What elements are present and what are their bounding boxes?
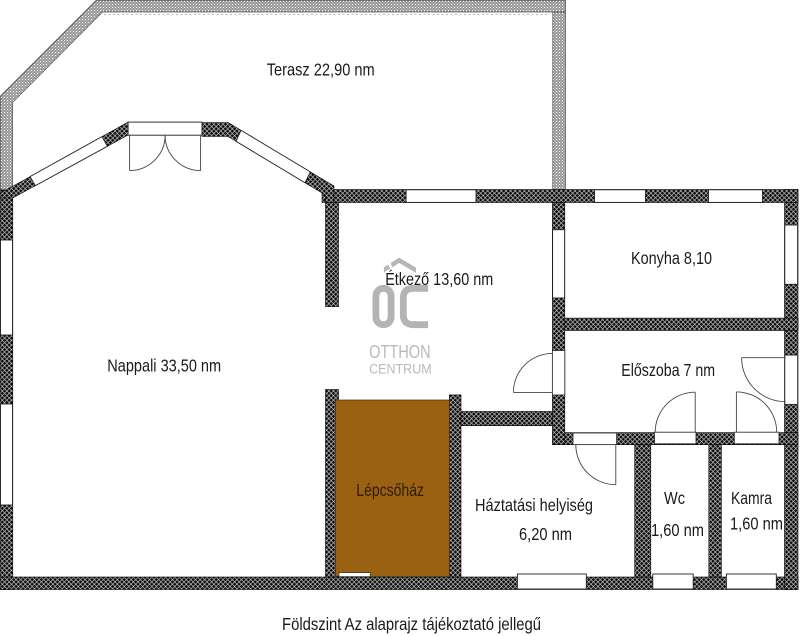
svg-text:1,60 nm: 1,60 nm: [730, 514, 783, 534]
svg-text:Wc: Wc: [664, 488, 685, 508]
svg-text:6,20 nm: 6,20 nm: [519, 524, 572, 544]
svg-text:CENTRUM: CENTRUM: [369, 362, 432, 378]
svg-text:Konyha 8,10: Konyha 8,10: [631, 248, 712, 268]
svg-text:1,60 nm: 1,60 nm: [651, 520, 704, 540]
svg-text:Háztatási helyiség: Háztatási helyiség: [475, 495, 593, 515]
svg-text:Kamra: Kamra: [731, 488, 772, 508]
svg-text:Lépcsőház: Lépcsőház: [356, 480, 424, 500]
svg-text:Nappali 33,50 nm: Nappali 33,50 nm: [107, 356, 221, 376]
svg-text:Étkező 13,60 nm: Étkező 13,60 nm: [385, 269, 493, 289]
svg-text:OTTHON: OTTHON: [369, 341, 431, 362]
svg-text:Terasz 22,90 nm: Terasz 22,90 nm: [267, 60, 375, 80]
svg-text:Földszint Az alaprajz tájékozt: Földszint Az alaprajz tájékoztató jelleg…: [282, 614, 541, 634]
svg-text:Előszoba 7 nm: Előszoba 7 nm: [621, 360, 715, 380]
